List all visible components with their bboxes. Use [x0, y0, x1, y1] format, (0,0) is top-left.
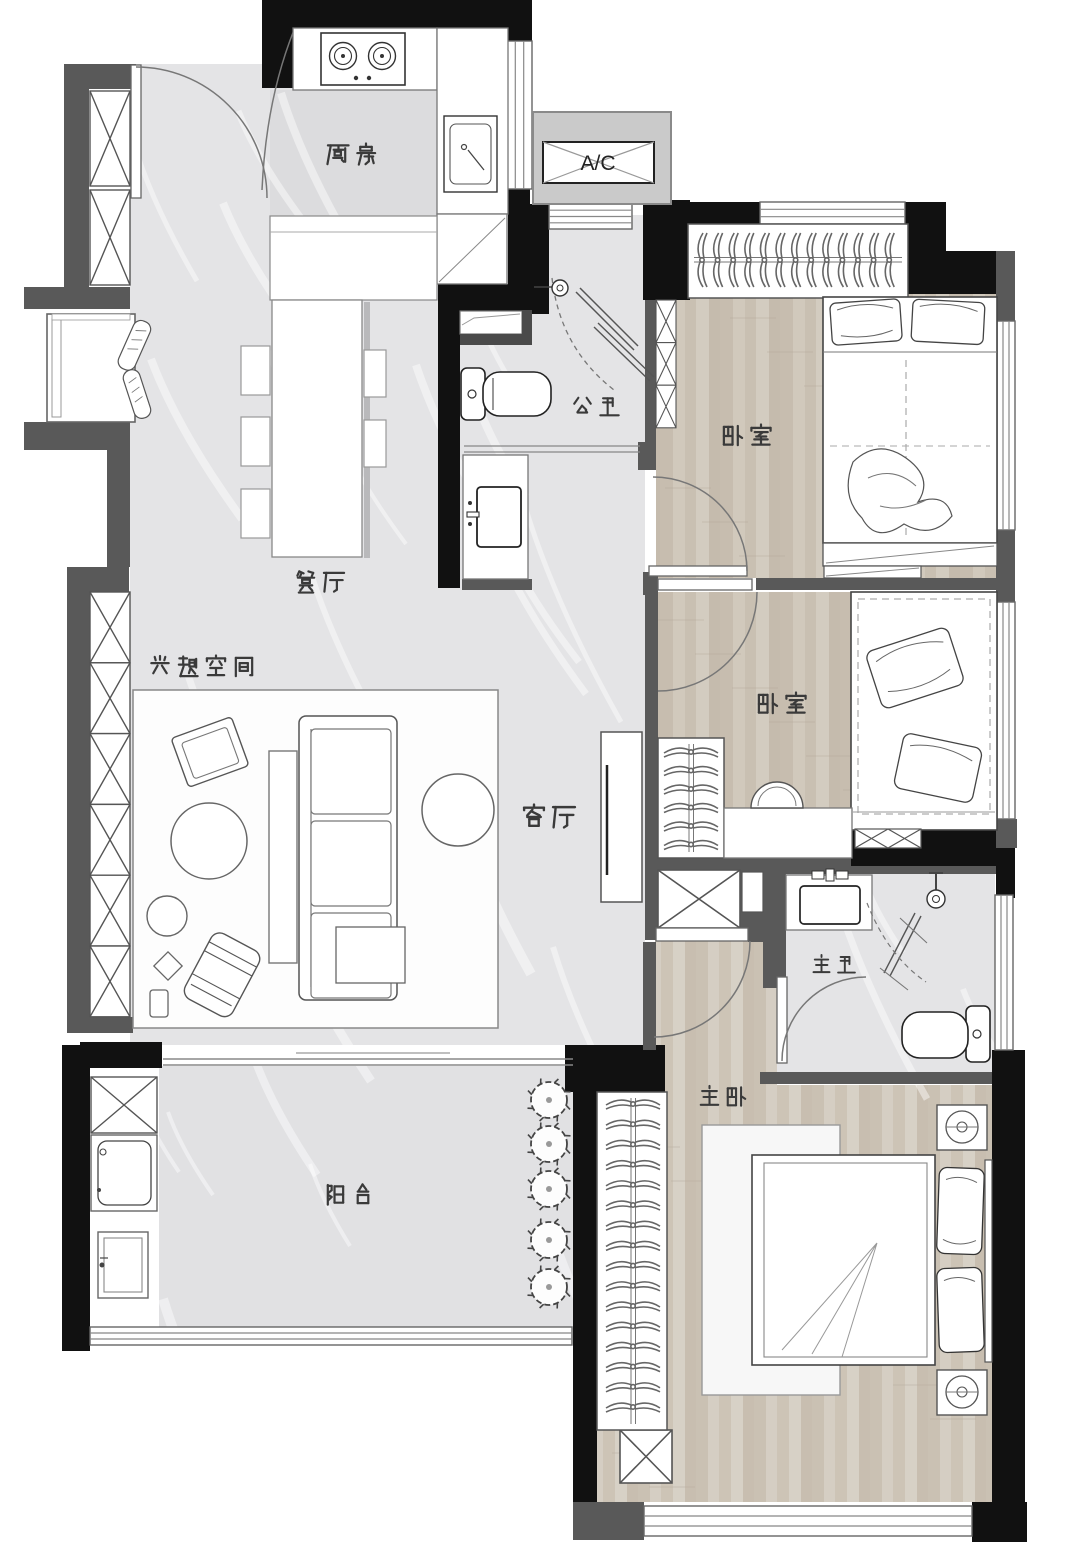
- svg-text:A/C: A/C: [580, 152, 615, 175]
